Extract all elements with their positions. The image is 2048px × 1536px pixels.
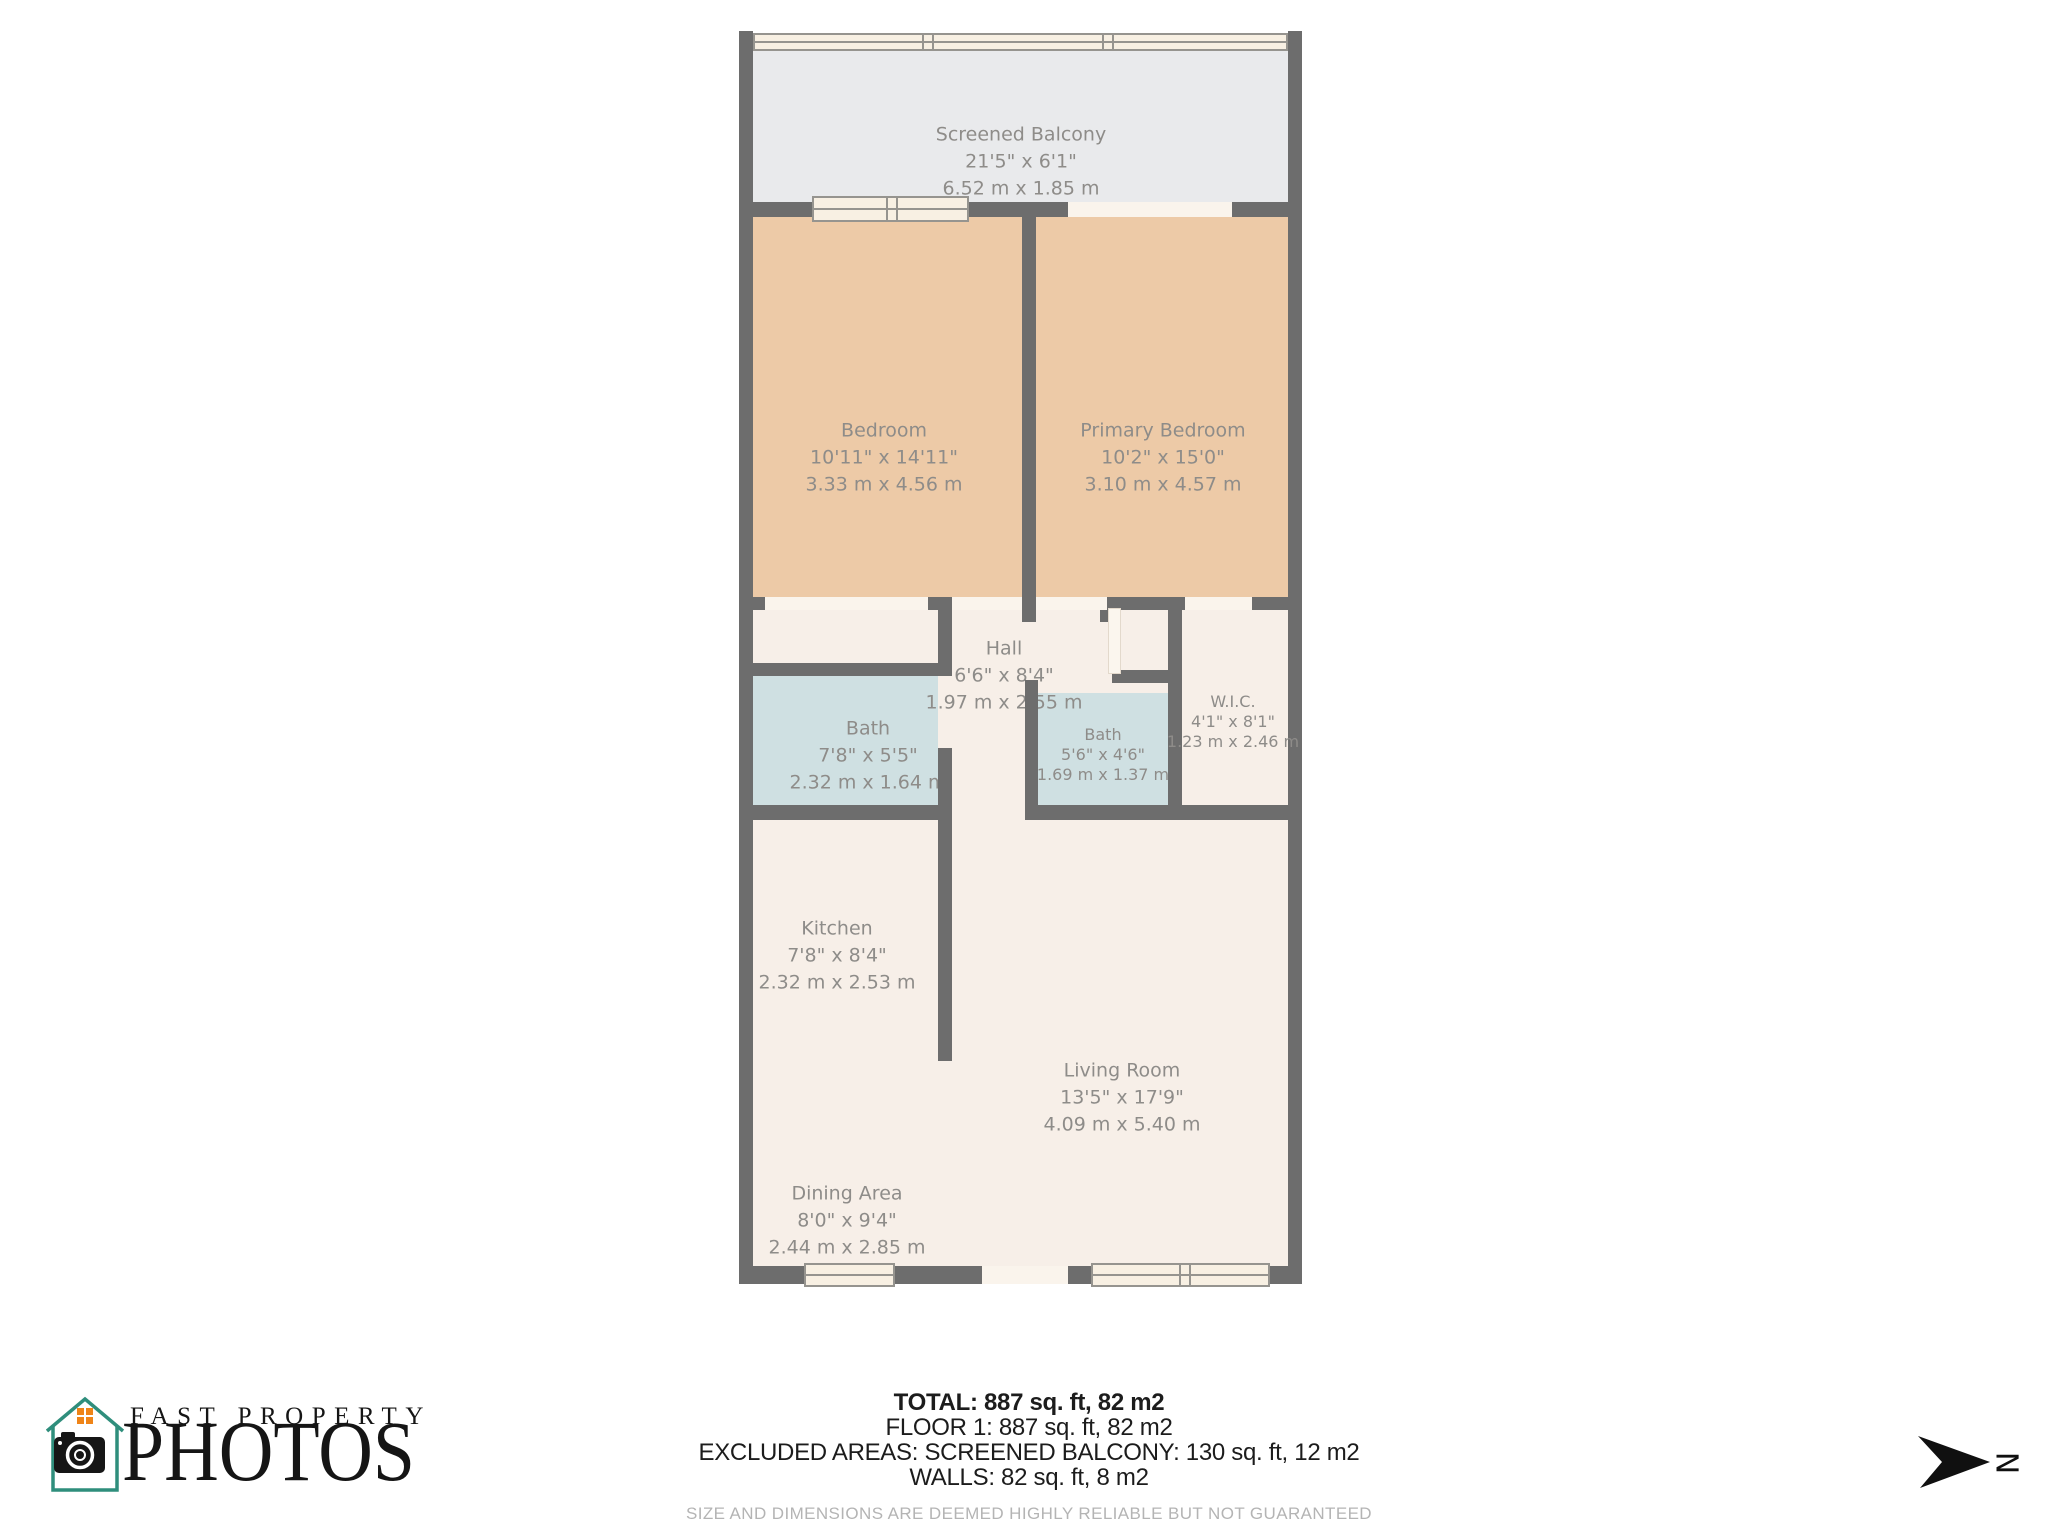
room-dimensions-metric: 1.23 m x 2.46 m	[1167, 732, 1299, 752]
room-name: Bedroom	[805, 418, 962, 445]
disclaimer-text: SIZE AND DIMENSIONS ARE DEEMED HIGHLY RE…	[529, 1504, 1529, 1524]
room-label-primary-bedroom: Primary Bedroom 10'2" x 15'0" 3.10 m x 4…	[1080, 418, 1245, 499]
room-dimensions-imperial: 21'5" x 6'1"	[936, 149, 1106, 176]
summary-walls: WALLS: 82 sq. ft, 8 m2	[529, 1465, 1529, 1490]
room-dimensions-imperial: 4'1" x 8'1"	[1167, 712, 1299, 732]
opening-balcony-slider	[1068, 202, 1232, 217]
floor-primary-bedroom	[1036, 217, 1288, 597]
opening-primary-bedroom-door	[1036, 597, 1107, 610]
room-dimensions-imperial: 10'11" x 14'11"	[805, 445, 962, 472]
room-name: Primary Bedroom	[1080, 418, 1245, 445]
wall-bath-2-left	[1025, 680, 1038, 820]
room-label-screened-balcony: Screened Balcony 21'5" x 6'1" 6.52 m x 1…	[936, 122, 1106, 203]
logo-camera-icon	[54, 1432, 105, 1473]
summary-excluded: EXCLUDED AREAS: SCREENED BALCONY: 130 sq…	[529, 1440, 1529, 1465]
room-dimensions-imperial: 8'0" x 9'4"	[768, 1208, 925, 1235]
room-label-dining-area: Dining Area 8'0" x 9'4" 2.44 m x 2.85 m	[768, 1181, 925, 1262]
wall-bath-2-wic-bottom	[1025, 805, 1288, 820]
wall-hall-left-upper	[938, 597, 952, 672]
floor-bedroom	[753, 217, 1022, 597]
opening-bedroom-closet	[765, 597, 928, 610]
room-name: Bath	[789, 716, 946, 743]
logo-house-roof	[47, 1399, 123, 1431]
room-dimensions-metric: 2.44 m x 2.85 m	[768, 1235, 925, 1262]
room-dimensions-imperial: 13'5" x 17'9"	[1043, 1085, 1200, 1112]
summary-floor1: FLOOR 1: 887 sq. ft, 82 m2	[529, 1415, 1529, 1440]
door-leaf-hall-vestibule	[1108, 608, 1121, 674]
room-dimensions-metric: 2.32 m x 2.53 m	[758, 970, 915, 997]
room-label-bath-1: Bath 7'8" x 5'5" 2.32 m x 1.64 m	[789, 716, 946, 797]
room-label-kitchen: Kitchen 7'8" x 8'4" 2.32 m x 2.53 m	[758, 916, 915, 997]
room-name: W.I.C.	[1167, 692, 1299, 712]
room-dimensions-metric: 3.33 m x 4.56 m	[805, 472, 962, 499]
wall-exterior-right	[1288, 31, 1302, 1284]
window-bedroom	[812, 196, 969, 222]
window-mullion	[886, 198, 898, 220]
room-dimensions-metric: 1.97 m x 2.55 m	[925, 690, 1082, 717]
logo-house-window	[77, 1408, 93, 1424]
room-dimensions-imperial: 5'6" x 4'6"	[1037, 745, 1169, 765]
window-balcony-front	[753, 33, 1288, 51]
room-dimensions-imperial: 10'2" x 15'0"	[1080, 445, 1245, 472]
north-arrow-head	[1918, 1436, 1990, 1488]
area-summary: TOTAL: 887 sq. ft, 82 m2 FLOOR 1: 887 sq…	[529, 1390, 1529, 1490]
wall-bath-1-bottom	[739, 805, 952, 820]
floorplan-page: Screened Balcony 21'5" x 6'1" 6.52 m x 1…	[0, 0, 2048, 1536]
room-name: Living Room	[1043, 1058, 1200, 1085]
room-dimensions-metric: 2.32 m x 1.64 m	[789, 770, 946, 797]
wall-bedroom-divider	[1022, 217, 1036, 622]
north-label: N	[1989, 1452, 2024, 1474]
window-living	[1091, 1263, 1270, 1287]
window-mullion	[922, 35, 934, 49]
room-dimensions-metric: 1.69 m x 1.37 m	[1037, 765, 1169, 785]
window-dining	[804, 1263, 895, 1287]
opening-bedroom-door	[952, 597, 1022, 610]
logo-text-photos: PHOTOS	[122, 1408, 415, 1494]
north-arrow: N	[1908, 1430, 2028, 1494]
room-name: Bath	[1037, 725, 1169, 745]
room-dimensions-imperial: 7'8" x 8'4"	[758, 943, 915, 970]
opening-entry	[982, 1266, 1068, 1284]
window-mullion	[1102, 35, 1114, 49]
room-name: Dining Area	[768, 1181, 925, 1208]
room-dimensions-imperial: 7'8" x 5'5"	[789, 743, 946, 770]
room-name: Screened Balcony	[936, 122, 1106, 149]
summary-total: TOTAL: 887 sq. ft, 82 m2	[529, 1390, 1529, 1415]
wall-kitchen-divider	[938, 748, 952, 1061]
room-label-bedroom: Bedroom 10'11" x 14'11" 3.33 m x 4.56 m	[805, 418, 962, 499]
room-name: Kitchen	[758, 916, 915, 943]
wall-bath-1-top	[739, 663, 952, 676]
window-mullion	[1179, 1265, 1191, 1285]
opening-wic-door	[1185, 597, 1252, 610]
room-label-wic: W.I.C. 4'1" x 8'1" 1.23 m x 2.46 m	[1167, 692, 1299, 752]
room-dimensions-metric: 3.10 m x 4.57 m	[1080, 472, 1245, 499]
room-dimensions-metric: 4.09 m x 5.40 m	[1043, 1112, 1200, 1139]
room-label-living-room: Living Room 13'5" x 17'9" 4.09 m x 5.40 …	[1043, 1058, 1200, 1139]
wall-exterior-left	[739, 31, 753, 1284]
fast-property-photos-logo-icon	[46, 1396, 126, 1494]
room-label-bath-2: Bath 5'6" x 4'6" 1.69 m x 1.37 m	[1037, 725, 1169, 785]
